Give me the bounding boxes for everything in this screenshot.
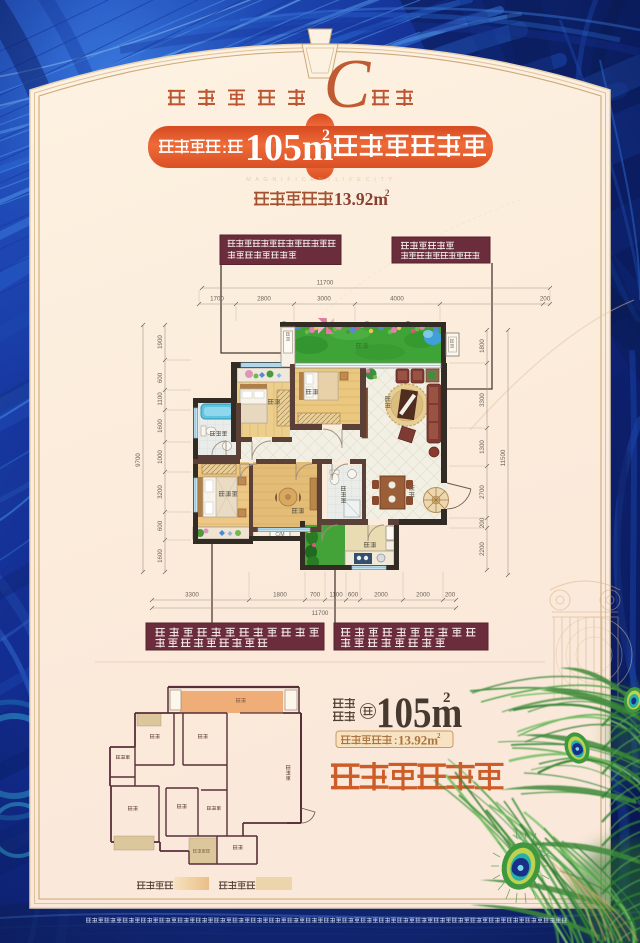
svg-text:2: 2	[322, 127, 330, 144]
svg-text:3300: 3300	[479, 393, 486, 407]
svg-text:2: 2	[437, 732, 441, 740]
svg-text::: :	[222, 140, 227, 157]
svg-text:2000: 2000	[416, 592, 430, 599]
svg-text:11700: 11700	[317, 280, 334, 287]
svg-text:11700: 11700	[312, 610, 329, 617]
svg-text:1600: 1600	[157, 419, 164, 433]
svg-text:1800: 1800	[479, 339, 486, 353]
svg-text:3200: 3200	[157, 485, 164, 499]
svg-text:1900: 1900	[157, 335, 164, 349]
svg-text:2200: 2200	[479, 542, 486, 556]
svg-text:3000: 3000	[317, 296, 331, 303]
svg-text:1100: 1100	[157, 392, 164, 406]
svg-text:200: 200	[479, 517, 486, 528]
svg-text:13.92m: 13.92m	[398, 733, 438, 748]
svg-text:M A G N I F I C E N T L I F E: M A G N I F I C E N T L I F E C I T Y	[246, 177, 393, 183]
svg-text:11500: 11500	[500, 449, 507, 466]
svg-text:600: 600	[157, 372, 164, 383]
svg-text:1300: 1300	[479, 440, 486, 454]
svg-text:9700: 9700	[135, 453, 142, 467]
svg-text:2: 2	[443, 690, 451, 706]
svg-text:1800: 1800	[273, 592, 287, 599]
svg-text:C: C	[324, 46, 372, 123]
svg-text:1600: 1600	[157, 549, 164, 563]
svg-text:200: 200	[445, 592, 456, 599]
svg-text:1000: 1000	[157, 450, 164, 464]
svg-text:200: 200	[540, 296, 551, 303]
svg-text:13.92m: 13.92m	[334, 189, 388, 209]
svg-text:700: 700	[310, 592, 321, 599]
svg-text:4000: 4000	[390, 296, 404, 303]
svg-text:2000: 2000	[374, 592, 388, 599]
svg-text:2: 2	[385, 188, 390, 198]
svg-text:1100: 1100	[329, 592, 343, 599]
svg-text:2700: 2700	[479, 485, 486, 499]
svg-text:600: 600	[157, 520, 164, 531]
svg-text:600: 600	[348, 592, 359, 599]
svg-text:1700: 1700	[210, 296, 224, 303]
svg-text:3300: 3300	[185, 592, 199, 599]
svg-text::: :	[394, 736, 397, 747]
svg-text:105m: 105m	[245, 127, 334, 169]
svg-text:2800: 2800	[257, 296, 271, 303]
